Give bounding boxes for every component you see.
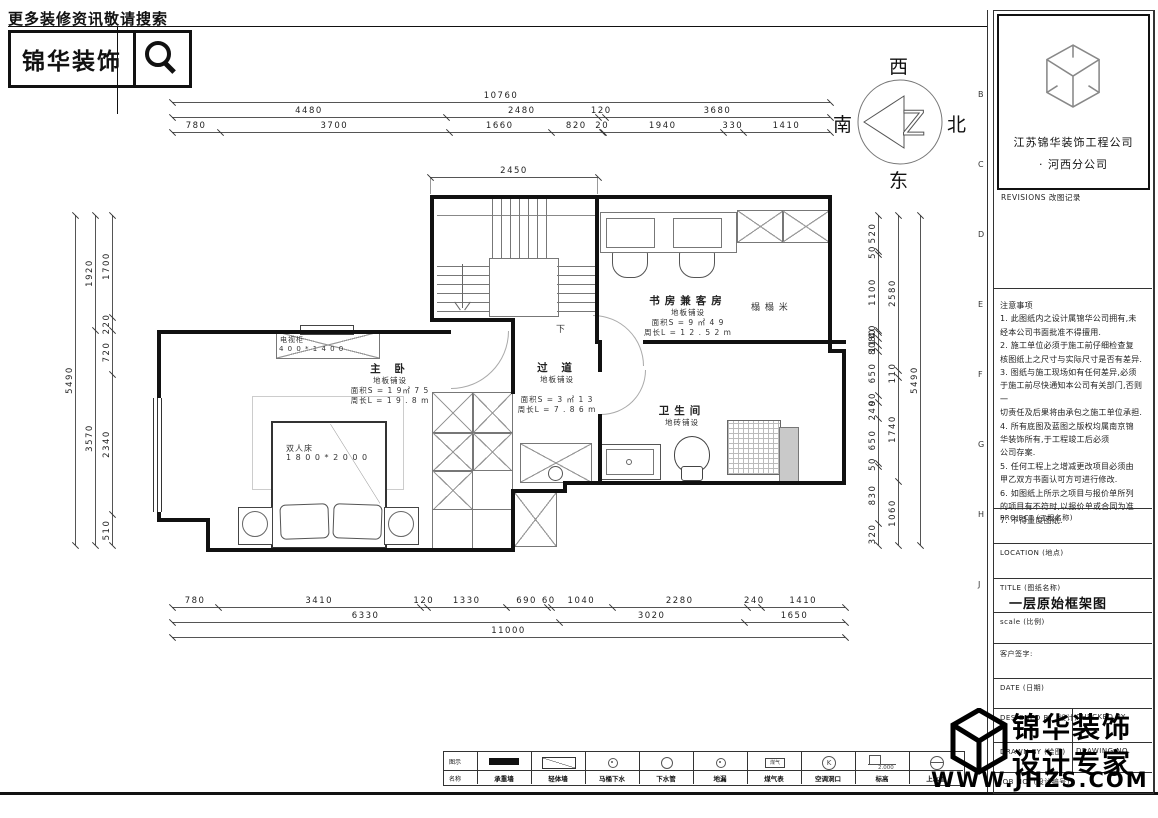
- room-info-line: 地砖铺设: [617, 418, 747, 428]
- dimension-line: [75, 215, 76, 545]
- dimension-label: 20: [567, 121, 637, 131]
- dimension-label: 2450: [479, 166, 549, 176]
- room-name: 卫生间: [617, 403, 747, 418]
- watermark-cube-logo: [948, 708, 1010, 776]
- wall: [643, 340, 846, 344]
- outline-box: [489, 258, 559, 317]
- cabinet-x-box: [737, 210, 784, 243]
- room-label: 主 卧地板铺设面积S = 1 9㎡ 7 5周长L = 1 9 . 8 m: [325, 361, 455, 406]
- note-line: 5. 任何工程上之增减更改项目必须由: [1000, 460, 1148, 473]
- wall: [430, 195, 831, 199]
- shower-area: [727, 420, 781, 475]
- revisions-title: REVISIONS 改图记录: [1001, 192, 1081, 203]
- legend-item-name: 轻体墙: [531, 773, 585, 783]
- dimension-label: 1740: [888, 394, 898, 464]
- legend-item-name: 马桶下水: [585, 773, 639, 783]
- dimension-label: 2340: [102, 409, 112, 479]
- legend-item-name: 下水管: [639, 773, 693, 783]
- dimension-line: [430, 177, 598, 178]
- room-info-line: [492, 385, 622, 395]
- dimension-label: 720: [102, 317, 112, 387]
- note-line: 的项目有不符时,以报价单或合同为准.: [1000, 500, 1148, 513]
- pillow-right: [332, 503, 382, 540]
- legend-floor-drain-icon: [716, 758, 726, 768]
- drawing-title-value: 一层原始框架图: [1009, 593, 1107, 612]
- sheet-inner-border: [987, 10, 988, 793]
- legend-item-name: 标高: [855, 773, 909, 783]
- wall: [157, 518, 210, 522]
- dimension-label: 1920: [85, 238, 95, 308]
- stair-step: [557, 284, 595, 285]
- title-block-divider: [994, 508, 1152, 509]
- wall: [511, 489, 567, 493]
- cabinet-x-box: [520, 443, 592, 483]
- legend-row1-label: 图示: [449, 757, 461, 766]
- dim-extension-line: [597, 178, 598, 194]
- furniture-label: 4 0 0 * 1 4 0 0: [279, 345, 344, 353]
- stair-step: [528, 199, 529, 258]
- dimension-label: 6330: [331, 611, 401, 621]
- wall: [430, 318, 515, 322]
- stair-step: [519, 199, 520, 258]
- dimension-label: 120: [566, 106, 636, 116]
- cabinet-x-box: [472, 432, 513, 472]
- company-cube-logo: [1044, 44, 1102, 110]
- dim-extension-line: [430, 178, 431, 194]
- dimension-label: 1410: [751, 121, 821, 131]
- dimension-label: 3570: [85, 403, 95, 473]
- toilet-base: [681, 466, 703, 481]
- stair-step: [437, 266, 489, 267]
- wall: [206, 548, 515, 552]
- cabinet-x-box: [782, 210, 830, 243]
- stair-step: [492, 199, 493, 258]
- legend-item-name: 承重墙: [477, 773, 531, 783]
- title-block-divider: [994, 643, 1152, 644]
- legend-elevation-triangle: [870, 756, 880, 764]
- dimension-label: 3700: [299, 121, 369, 131]
- wall: [828, 195, 832, 353]
- compass-south: 南: [833, 110, 852, 137]
- window-glazing-line: [161, 398, 162, 512]
- legend-item-name: 煤气表: [747, 773, 801, 783]
- zone-letter: H: [978, 510, 984, 519]
- compass-east: 东: [889, 166, 908, 193]
- dimension-label: 320: [868, 499, 878, 569]
- legend-row2-label: 名称: [449, 774, 461, 783]
- stair-step: [537, 199, 538, 258]
- company-name: 江苏锦华装饰工程公司: [999, 134, 1148, 150]
- watermark-brand: 锦华装饰: [1012, 706, 1132, 746]
- stair-step: [510, 199, 511, 258]
- legend-wall-solid-icon: [489, 758, 519, 765]
- room-label: 书房兼客房地板铺设面积S = 9 ㎡ 4 9周长L = 1 2 . 5 2 m: [623, 293, 753, 338]
- note-line: 华装饰所有,于工程竣工后必须: [1000, 433, 1148, 446]
- company-branch: · 河西分公司: [999, 156, 1148, 172]
- drawing-title-label: TITLE (图纸名称): [1000, 583, 1061, 593]
- project-label: PROJECT (工程名称): [1000, 513, 1073, 523]
- sheet-bottom-border: [0, 792, 1158, 795]
- dimension-label: 1060: [888, 478, 898, 548]
- zone-letter: J: [978, 580, 980, 589]
- dimension-label: 1410: [768, 596, 838, 606]
- outline-box: [606, 218, 655, 248]
- nightstand-left-lamp: [242, 511, 268, 537]
- nightstand-right-lamp: [388, 511, 414, 537]
- dimension-line: [172, 132, 830, 133]
- zone-letter: F: [978, 370, 983, 379]
- furniture-label: 下: [556, 322, 566, 335]
- window-glazing-line: [153, 398, 154, 512]
- dimension-label: 3680: [682, 106, 752, 116]
- dimension-line: [878, 215, 879, 545]
- watermark-url: WWW.JHZS.COM: [931, 768, 1149, 792]
- zone-letter: G: [978, 440, 984, 449]
- title-block-divider: [994, 678, 1152, 679]
- room-name: 主 卧: [325, 361, 455, 376]
- legend-item-name: 空调洞口: [801, 773, 855, 783]
- legend-toilet-drain-dot: [611, 761, 613, 763]
- note-line: 2. 施工单位必须于施工前仔细检查复: [1000, 339, 1148, 352]
- wall: [206, 518, 210, 552]
- outline-box: [673, 218, 722, 248]
- wall: [563, 481, 846, 485]
- note-line: 公司存案.: [1000, 446, 1148, 459]
- outline-box: [432, 509, 474, 550]
- compass-circle: Z: [856, 78, 944, 166]
- title-block: 江苏锦华装饰工程公司 · 河西分公司 REVISIONS 改图记录 NO. 编号…: [993, 10, 1154, 794]
- dimension-label: 5490: [910, 345, 920, 415]
- duct-column: [779, 427, 799, 485]
- dimension-line: [95, 215, 96, 545]
- company-box: 江苏锦华装饰工程公司 · 河西分公司: [997, 14, 1150, 190]
- zone-letter: D: [978, 230, 984, 239]
- dimension-label: 1040: [546, 596, 616, 606]
- note-line: 切责任及后果将由承包之施工单位承担.: [1000, 406, 1148, 419]
- legend-toilet-drain-icon: [608, 758, 618, 768]
- room-info-line: 地板铺设: [623, 308, 753, 318]
- compass-north: 北: [947, 110, 966, 137]
- cabinet-x-box: [432, 432, 474, 472]
- room-info-line: 周长L = 7 . 8 6 m: [492, 405, 622, 415]
- stair-step: [437, 302, 489, 303]
- dimension-line: [172, 117, 830, 118]
- dimension-label: 780: [161, 121, 231, 131]
- dimension-label: 1650: [760, 611, 830, 621]
- zone-letter: E: [978, 300, 983, 309]
- dimension-label: 10760: [466, 91, 536, 101]
- note-line: 4. 所有底图及蓝图之版权均属南京锦: [1000, 420, 1148, 433]
- wall: [157, 330, 451, 334]
- wall: [842, 349, 846, 485]
- stair-step: [557, 266, 595, 267]
- dimension-line: [898, 215, 899, 545]
- stair-step: [501, 199, 502, 258]
- dimension-label: 4480: [274, 106, 344, 116]
- legend-elevation-value: 2.000: [878, 765, 894, 771]
- stair-step: [437, 275, 489, 276]
- stair-landing-line: [437, 215, 595, 216]
- window-glazing-line: [157, 398, 158, 512]
- note-line: 6. 如图纸上所示之项目与报价单所列: [1000, 487, 1148, 500]
- dimension-line: [172, 102, 830, 103]
- dimension-label: 3020: [617, 611, 687, 621]
- dimension-line: [920, 215, 921, 545]
- dimension-label: 2480: [487, 106, 557, 116]
- room-info-line: 周长L = 1 9 . 8 m: [325, 396, 455, 406]
- stair-step: [557, 302, 595, 303]
- dimension-label: 1940: [628, 121, 698, 131]
- legend-downpipe-icon: [661, 757, 673, 769]
- room-name: 过 道: [492, 360, 622, 375]
- stair-direction-arrow: [462, 264, 463, 308]
- stair-step: [437, 293, 489, 294]
- dimension-label: 5490: [65, 345, 75, 415]
- dimension-label: 3410: [284, 596, 354, 606]
- date-label: DATE (日期): [1000, 683, 1044, 693]
- furniture-label: 1 8 0 0 * 2 0 0 0: [286, 453, 368, 462]
- furniture-label: 电视柜: [280, 335, 304, 345]
- zone-letter: C: [978, 160, 984, 169]
- dimension-label: 510: [102, 495, 112, 565]
- furniture-label: 榻 榻 米: [751, 300, 789, 313]
- legend-wall-diag-icon: [542, 757, 576, 769]
- desk-chair-2: [679, 250, 715, 278]
- room-label: 过 道地板铺设 面积S = 3 ㎡ 1 3周长L = 7 . 8 6 m: [492, 360, 622, 415]
- magnifier-handle: [163, 61, 176, 74]
- note-line: 3. 图纸与施工现场如有任何差异,必须: [1000, 366, 1148, 379]
- stair-step: [557, 311, 595, 312]
- stair-step: [437, 311, 489, 312]
- title-block-divider: [994, 288, 1152, 289]
- note-line: 注意事项: [1000, 299, 1148, 312]
- note-line: 于施工前尽快通知本公司有关部门,否则一: [1000, 379, 1148, 406]
- client-sign-label: 客户签字:: [1000, 649, 1033, 659]
- wall: [598, 414, 602, 484]
- wall: [511, 489, 515, 552]
- wall: [430, 195, 434, 322]
- legend-item-name: 地漏: [693, 773, 747, 783]
- room-info-line: 地板铺设: [492, 375, 622, 385]
- note-line: 1. 此图纸内之设计属锦华公司拥有,未: [1000, 312, 1148, 325]
- title-block-divider: [994, 543, 1152, 544]
- cabinet-x-box: [514, 492, 557, 547]
- room-info-line: 面积S = 9 ㎡ 4 9: [623, 318, 753, 328]
- note-line: 甲乙双方书面认可方可进行修改.: [1000, 473, 1148, 486]
- sheet-outer-border: [1154, 10, 1155, 793]
- notes: 注意事项 1. 此图纸内之设计属锦华公司拥有,未经本公司书面批准不得擅用. 2.…: [1000, 299, 1148, 527]
- svg-text:Z: Z: [902, 104, 925, 144]
- note-line: 经本公司书面批准不得擅用.: [1000, 326, 1148, 339]
- dimension-line: [112, 215, 113, 545]
- dimension-label: 2580: [888, 258, 898, 328]
- brand-name: 锦华装饰: [11, 33, 136, 85]
- dimension-label: 2280: [645, 596, 715, 606]
- legend-gas-meter-icon: 煤气: [765, 758, 785, 768]
- dimension-label: 1660: [465, 121, 535, 131]
- cabinet-x-box: [432, 470, 474, 511]
- room-label: 卫生间地砖铺设: [617, 403, 747, 428]
- dimension-line: [172, 637, 845, 638]
- stair-step: [546, 199, 547, 258]
- zone-letter: B: [978, 90, 984, 99]
- stair-step: [557, 293, 595, 294]
- desk-chair-1: [612, 250, 648, 278]
- title-block-divider: [994, 578, 1152, 579]
- scale-label: scale (比例): [1000, 617, 1045, 627]
- pillow-left: [279, 503, 329, 540]
- note-line: 核图纸上之尺寸与实际尺寸是否有差异.: [1000, 353, 1148, 366]
- room-info-line: 地板铺设: [325, 376, 455, 386]
- dimension-label: 780: [160, 596, 230, 606]
- location-label: LOCATION (地点): [1000, 548, 1064, 558]
- room-info-line: 周长L = 1 2 . 5 2 m: [623, 328, 753, 338]
- room-info-line: 面积S = 3 ㎡ 1 3: [492, 395, 622, 405]
- search-icon: [136, 33, 189, 85]
- header-rule: [8, 26, 987, 27]
- legend-floor-drain-dot: [719, 761, 721, 763]
- dimension-label: 11000: [474, 626, 544, 636]
- room-name: 书房兼客房: [623, 293, 753, 308]
- legend-aircon-hole-icon: K: [822, 756, 836, 770]
- brand-search-box: 锦华装饰: [8, 30, 192, 88]
- bed-fold-line: [330, 424, 380, 504]
- room-info-line: 面积S = 1 9㎡ 7 5: [325, 386, 455, 396]
- outline-box: [472, 470, 513, 511]
- drawing-sheet: 更多装修资讯敬请搜索 锦华装饰 Z 西 东 南 北: [0, 0, 1158, 818]
- stair-step: [437, 284, 489, 285]
- wall: [595, 195, 599, 344]
- title-block-divider: [994, 612, 1152, 613]
- compass-west: 西: [889, 52, 908, 79]
- outline-box: [472, 509, 513, 550]
- vanity-drain: [626, 459, 632, 465]
- stair-step: [557, 275, 595, 276]
